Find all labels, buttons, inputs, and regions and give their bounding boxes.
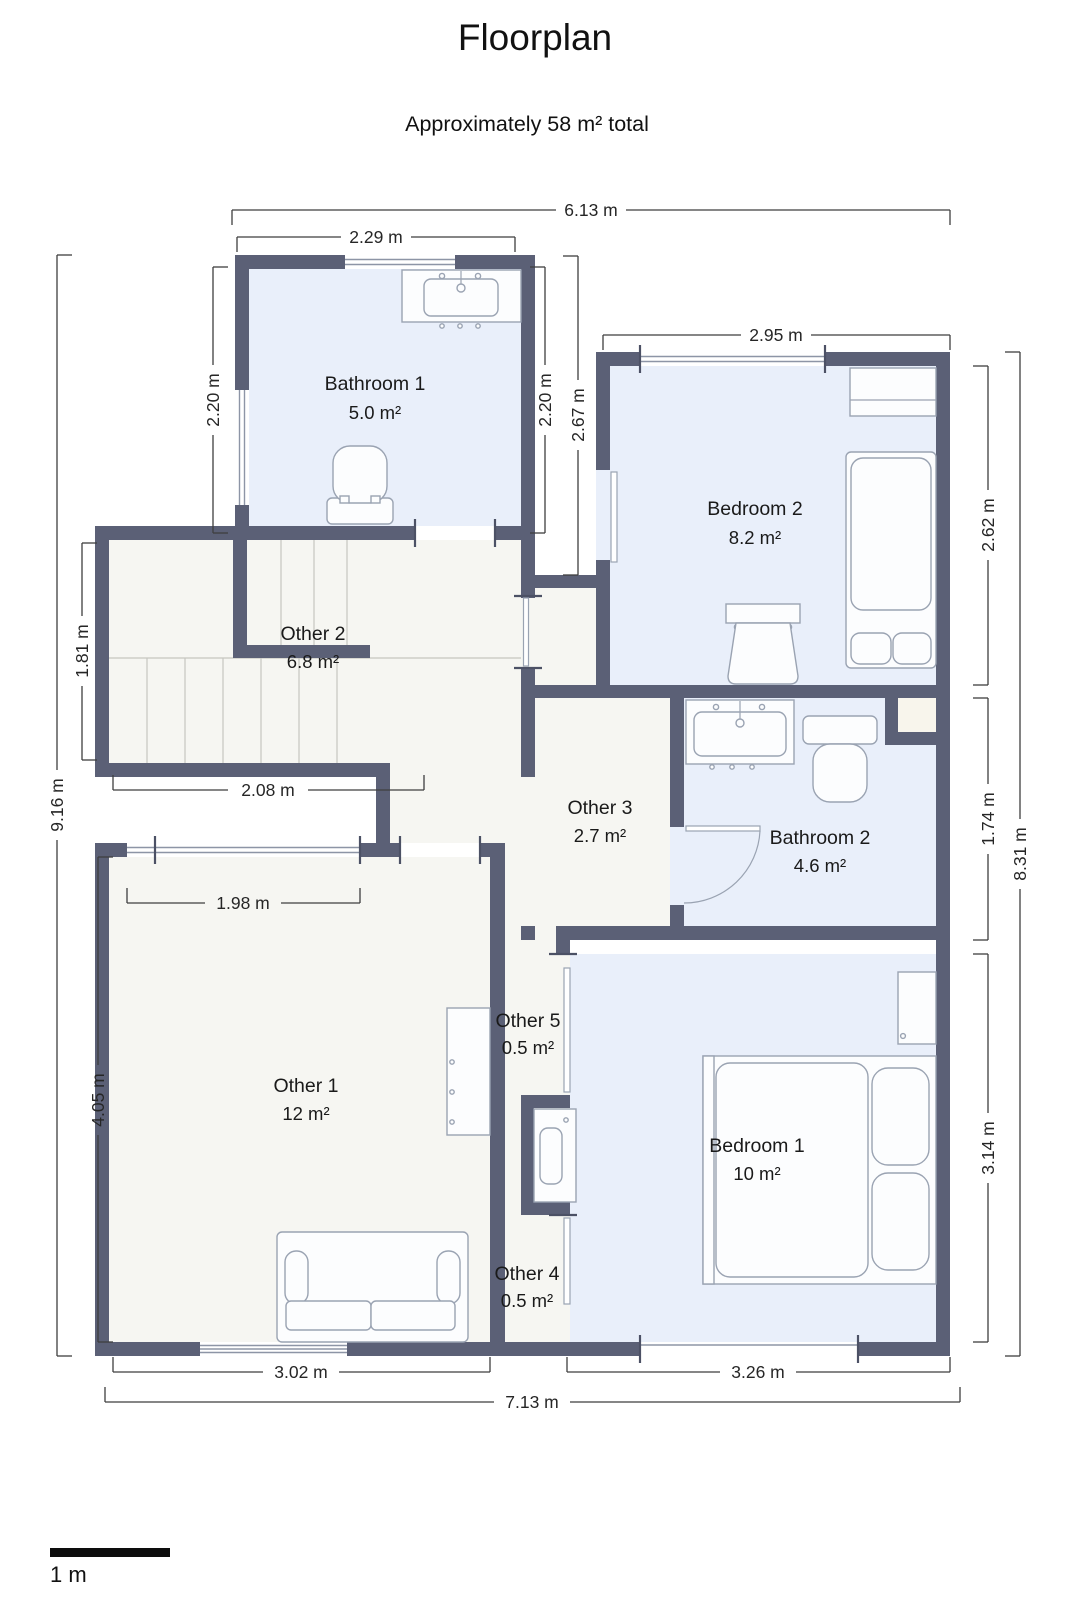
dimension-label: 2.08 m xyxy=(241,780,295,800)
alcove-floor xyxy=(898,698,936,732)
sink-icon xyxy=(686,700,794,769)
door-icon xyxy=(611,472,617,562)
dimension-label: 2.20 m xyxy=(203,373,223,427)
scale-bar-label: 1 m xyxy=(50,1562,87,1587)
dimension-bathroom1-width: 2.29 m xyxy=(237,227,515,252)
cabinet-icon xyxy=(447,1008,490,1135)
hall-landing-floor xyxy=(535,588,596,685)
dimension-label: 1.81 m xyxy=(72,624,92,678)
room-area-other2: 6.8 m² xyxy=(287,651,339,672)
room-area-bathroom2: 4.6 m² xyxy=(794,855,846,876)
room-area-bedroom1: 10 m² xyxy=(733,1163,780,1184)
dimension-label: 6.13 m xyxy=(564,200,618,220)
sofa-icon xyxy=(277,1232,468,1342)
dimension-bedroom1-width: 3.26 m xyxy=(567,1357,950,1382)
dimension-right-total: 8.31 m xyxy=(1005,352,1030,1356)
page-subtitle: Approximately 58 m² total xyxy=(405,112,649,136)
appliance-icon xyxy=(534,1109,576,1202)
room-area-bedroom2: 8.2 m² xyxy=(729,527,781,548)
scale-bar: 1 m xyxy=(50,1548,170,1587)
dimension-left-total: 9.16 m xyxy=(47,255,72,1356)
room-area-other4: 0.5 m² xyxy=(501,1290,553,1311)
sink-icon xyxy=(402,270,521,328)
bedroom2-door-floor xyxy=(596,470,610,560)
bed-icon xyxy=(846,452,936,668)
floorplan-canvas: Floorplan Approximately 58 m² total xyxy=(0,0,1071,1600)
dimension-label: 2.20 m xyxy=(535,373,555,427)
dimension-label: 2.67 m xyxy=(568,388,588,442)
dimension-label: 2.62 m xyxy=(978,498,998,552)
dimension-label: 8.31 m xyxy=(1010,827,1030,881)
dimension-label: 1.74 m xyxy=(978,792,998,846)
room-label-other4: Other 4 xyxy=(494,1263,559,1285)
dimension-top-total: 6.13 m xyxy=(232,200,950,225)
dimension-label: 2.95 m xyxy=(749,325,803,345)
nightstand-icon xyxy=(898,972,936,1044)
room-label-bathroom2: Bathroom 2 xyxy=(770,827,871,849)
wardrobe-icon xyxy=(850,368,936,416)
window-icon xyxy=(235,390,249,505)
scale-bar-rule xyxy=(50,1548,170,1557)
dimension-other2-height: 1.81 m xyxy=(72,543,97,760)
room-area-other5: 0.5 m² xyxy=(502,1037,554,1058)
room-area-other1: 12 m² xyxy=(282,1103,329,1124)
page-title: Floorplan xyxy=(458,17,612,58)
room-label-bedroom1: Bedroom 1 xyxy=(709,1135,804,1157)
window-icon xyxy=(200,1342,347,1356)
window-icon xyxy=(345,255,455,269)
room-label-other2: Other 2 xyxy=(280,623,345,645)
dimension-label: 3.02 m xyxy=(274,1362,328,1382)
room-area-other3: 2.7 m² xyxy=(574,825,626,846)
dimension-bedroom1-height: 3.14 m xyxy=(973,954,998,1342)
hall-south-floor xyxy=(505,843,570,940)
dimension-bathroom1-height-left: 2.20 m xyxy=(203,267,228,533)
room-label-other3: Other 3 xyxy=(567,797,632,819)
dimension-bottom-total: 7.13 m xyxy=(105,1387,960,1412)
room-label-bedroom2: Bedroom 2 xyxy=(707,498,802,520)
bathroom2-door-floor xyxy=(670,827,684,905)
dimension-label: 7.13 m xyxy=(505,1392,559,1412)
toilet-icon xyxy=(803,716,877,802)
desk-chair-icon xyxy=(726,604,800,684)
dimension-label: 3.14 m xyxy=(978,1121,998,1175)
dimension-corridor-height: 2.67 m xyxy=(563,256,588,575)
dimension-label: 4.05 m xyxy=(88,1073,108,1127)
dimension-bedroom2-width: 2.95 m xyxy=(603,325,950,350)
dimension-label: 2.29 m xyxy=(349,227,403,247)
dimension-other1-width: 3.02 m xyxy=(113,1357,490,1382)
room-label-bathroom1: Bathroom 1 xyxy=(325,373,426,395)
dimension-label: 3.26 m xyxy=(731,1362,785,1382)
dimension-bedroom2-height: 2.62 m xyxy=(973,366,998,685)
toilet-icon xyxy=(327,446,393,524)
hall-west-floor xyxy=(390,763,521,843)
dimension-bathroom2-height: 1.74 m xyxy=(973,698,998,940)
dimension-label: 9.16 m xyxy=(47,778,67,832)
floorplan-page: Floorplan Approximately 58 m² total xyxy=(0,0,1071,1600)
room-label-other1: Other 1 xyxy=(273,1075,338,1097)
dimension-label: 1.98 m xyxy=(216,893,270,913)
room-area-bathroom1: 5.0 m² xyxy=(349,402,401,423)
room-label-other5: Other 5 xyxy=(495,1010,560,1032)
